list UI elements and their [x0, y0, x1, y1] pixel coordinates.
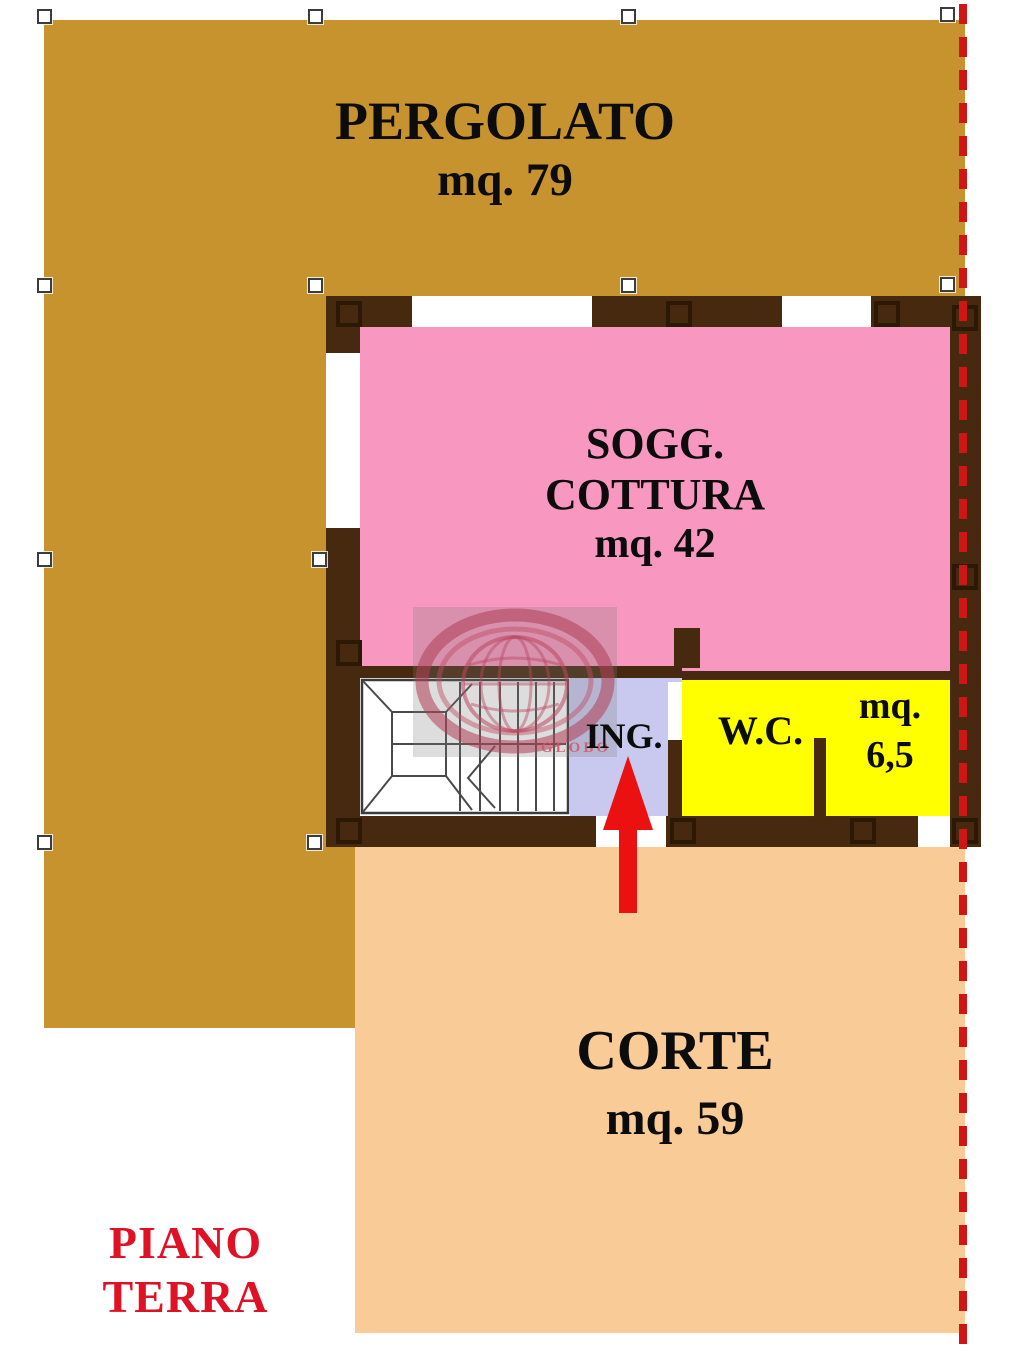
wall-segment [326, 816, 596, 847]
wall-pillar [336, 640, 362, 666]
selection-handle[interactable] [621, 278, 636, 293]
corte-name: CORTE [515, 1015, 835, 1088]
wall-pillar [666, 301, 692, 327]
wall-segment [666, 816, 918, 847]
selection-handle[interactable] [940, 7, 955, 22]
wall-pillar [336, 818, 362, 844]
selection-handle[interactable] [37, 552, 52, 567]
pergolato-label: PERGOLATO mq. 79 [310, 90, 700, 207]
selection-handle[interactable] [940, 277, 955, 292]
selection-handle[interactable] [37, 835, 52, 850]
wall-segment [682, 671, 950, 680]
floor-title-line1: PIANO [78, 1216, 293, 1270]
wc-area-line1: mq. [840, 682, 940, 731]
pergolato-area-value: mq. 79 [310, 153, 700, 208]
entrance-arrow-icon [598, 752, 658, 915]
selection-handle[interactable] [307, 835, 322, 850]
boundary-dashed-line [959, 4, 967, 1346]
floor-title: PIANO TERRA [78, 1216, 293, 1325]
pergolato-name: PERGOLATO [310, 90, 700, 153]
wc-label: W.C. [698, 708, 823, 754]
selection-handle[interactable] [308, 278, 323, 293]
selection-handle[interactable] [621, 9, 636, 24]
selection-handle[interactable] [37, 9, 52, 24]
wall-pillar [874, 301, 900, 327]
soggiorno-label: SOGG. COTTURA mq. 42 [455, 418, 855, 569]
door-jamb [674, 628, 700, 668]
floor-title-line2: TERRA [78, 1270, 293, 1324]
corte-area-value: mq. 59 [515, 1088, 835, 1150]
wall-segment [326, 528, 360, 847]
wall-pillar [670, 818, 696, 844]
soggiorno-area-value: mq. 42 [455, 520, 855, 569]
wc-area-line2: 6,5 [840, 731, 940, 780]
wall-pillar [336, 301, 362, 327]
wall-pillar [850, 818, 876, 844]
selection-handle[interactable] [37, 278, 52, 293]
corte-label: CORTE mq. 59 [515, 1015, 835, 1150]
soggiorno-name-line1: SOGG. [455, 418, 855, 469]
wc-area-value: mq. 6,5 [840, 682, 940, 781]
floor-plan: PERGOLATO mq. 79 [0, 0, 1024, 1368]
selection-handle[interactable] [312, 552, 327, 567]
soggiorno-name-line2: COTTURA [455, 469, 855, 520]
pergolato-area-left [44, 296, 355, 1028]
selection-handle[interactable] [308, 9, 323, 24]
